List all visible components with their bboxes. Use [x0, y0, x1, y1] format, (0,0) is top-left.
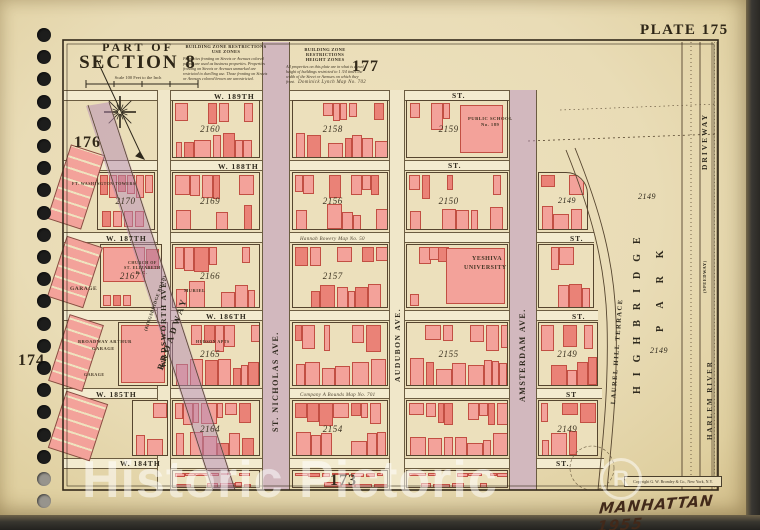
street-label: W. 189TH: [214, 92, 255, 101]
block-number: 2159: [439, 124, 459, 134]
building-label: GARAGE: [84, 372, 105, 377]
block-number: 2169: [200, 196, 220, 206]
registered-trademark-icon: R: [600, 458, 642, 500]
map-reference-note: Hannah Bowery Map No. 50: [300, 237, 365, 242]
block-number: 2165: [200, 349, 220, 359]
building-label: UNIVERSITY: [464, 265, 507, 271]
avenue-label: HIGHBRIDGE: [632, 227, 643, 394]
map-reference-note: Company A Bounds Map No. 701: [300, 393, 375, 398]
avenue-label: WADSWORTH AVE.: [159, 278, 168, 368]
street-label: ST.: [556, 459, 570, 468]
zone-restrictions-use: BUILDING ZONE RESTRICTIONS USE ZONES Pro…: [183, 44, 269, 81]
binding-hole: [37, 250, 51, 264]
block-number: 2154: [323, 424, 343, 434]
plate-number: PLATE 175: [640, 22, 729, 39]
binding-hole: [37, 472, 51, 486]
binding-hole: [37, 317, 51, 331]
avenue-label: LAUREL HILL TERRACE: [610, 298, 624, 404]
avenue-label: (SPEEDWAY): [702, 260, 707, 293]
park-block-number: 2149: [638, 192, 656, 201]
binding-hole: [37, 117, 51, 131]
binding-hole: [37, 450, 51, 464]
adjacent-plate-177: 177: [352, 58, 379, 76]
block-number: 2157: [323, 271, 343, 281]
building-label: PUBLIC SCHOOL: [468, 116, 513, 121]
zone-use-body: Properties fronting on Streets or Avenue…: [183, 56, 269, 82]
block-number: 2150: [439, 196, 459, 206]
binding-hole: [37, 361, 51, 375]
avenue-label: PARK: [655, 232, 666, 332]
block-number: 2156: [323, 196, 343, 206]
binding-hole: [37, 228, 51, 242]
binding-hole: [37, 428, 51, 442]
building-label: BROADWAY ARTHUR: [78, 339, 132, 344]
building-label: GARAGE: [92, 346, 115, 351]
street-label: ST.: [570, 234, 584, 243]
building-label: No. 189: [481, 122, 499, 127]
avenue-label: DRIVEWAY: [700, 113, 709, 170]
binding-hole: [37, 28, 51, 42]
scale-note: Scale 100 Feet to the Inch: [78, 75, 198, 80]
zone-height-heading: BUILDING ZONE RESTRICTIONS: [286, 47, 364, 57]
block-number: 2164: [200, 424, 220, 434]
block-number: 2155: [439, 349, 459, 359]
building-label: R. C.: [136, 270, 147, 275]
watermark-text: Historic Pictoric: [82, 450, 498, 510]
building-label: HUDSON APTS: [196, 339, 230, 344]
photo-edge-right: [746, 0, 760, 530]
block-number: 2149: [557, 424, 577, 434]
street-label: W. 185TH: [96, 390, 137, 399]
street-label: W. 186TH: [206, 312, 247, 321]
street-label: W. 188TH: [218, 162, 259, 171]
avenue-label: AUDUBON AVE.: [393, 308, 402, 382]
scanned-atlas-photo: PLATE 175 PART OF SECTION 8 Scale 100 Fe…: [0, 0, 760, 530]
street-label: ST.: [452, 91, 466, 100]
avenue-label: AMSTERDAM AVE.: [518, 308, 527, 402]
building-label: YESHIVA: [472, 256, 502, 262]
adjacent-plate-176: 176: [74, 134, 101, 152]
building-label: MURIEL: [184, 288, 206, 293]
block-number: 2160: [200, 124, 220, 134]
avenue-label: ST. NICHOLAS AVE.: [271, 331, 280, 432]
avenue-label: HARLEM RIVER: [706, 360, 714, 440]
park-block-number: 2149: [558, 196, 576, 205]
block-number: 2158: [323, 124, 343, 134]
zone-use-subheading: USE ZONES: [183, 49, 269, 54]
street-label: ST: [566, 390, 577, 399]
building-label: GARAGE: [70, 286, 97, 292]
street-label: W. 187TH: [106, 234, 147, 243]
binding-hole: [37, 206, 51, 220]
binding-hole: [37, 95, 51, 109]
block-number: 2170: [116, 196, 136, 206]
block-number: 2166: [200, 271, 220, 281]
block-number: 2149: [557, 349, 577, 359]
building-label: FT. WASHINGTON TOWERS: [72, 181, 136, 186]
street-label: ST.: [448, 161, 462, 170]
binding-hole: [37, 139, 51, 153]
park-block-number: 2149: [650, 346, 668, 355]
street-label: ST.: [572, 312, 586, 321]
binding-hole: [37, 339, 51, 353]
